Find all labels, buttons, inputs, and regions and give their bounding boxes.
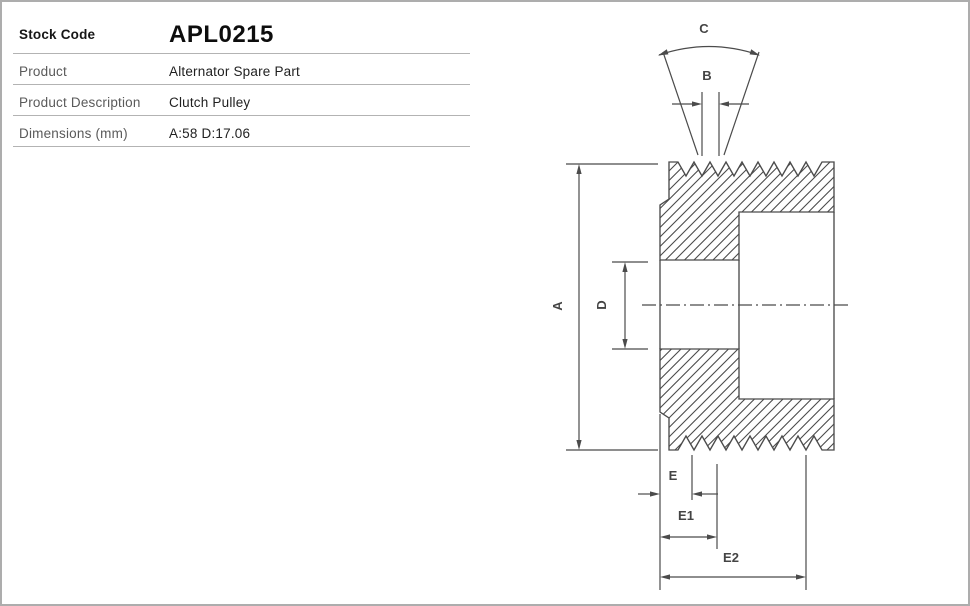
dimension-e1-label: E1	[678, 508, 694, 523]
dimension-e-label: E	[669, 468, 678, 483]
pulley-technical-drawing: A D C B	[2, 2, 970, 606]
dimension-a-label: A	[550, 301, 565, 311]
angle-arc	[659, 47, 759, 56]
dimension-e2-label: E2	[723, 550, 739, 565]
lower-rim-section	[660, 349, 834, 450]
dimension-a	[566, 164, 658, 450]
upper-rim-section	[660, 162, 834, 260]
dimension-c-label: C	[699, 21, 709, 36]
groove-detail	[658, 47, 760, 157]
dimension-d-label: D	[594, 300, 609, 309]
dimension-b-label: B	[702, 68, 711, 83]
product-spec-page: Stock Code APL0215 Product Alternator Sp…	[0, 0, 970, 606]
pulley-cross-section	[660, 162, 834, 450]
